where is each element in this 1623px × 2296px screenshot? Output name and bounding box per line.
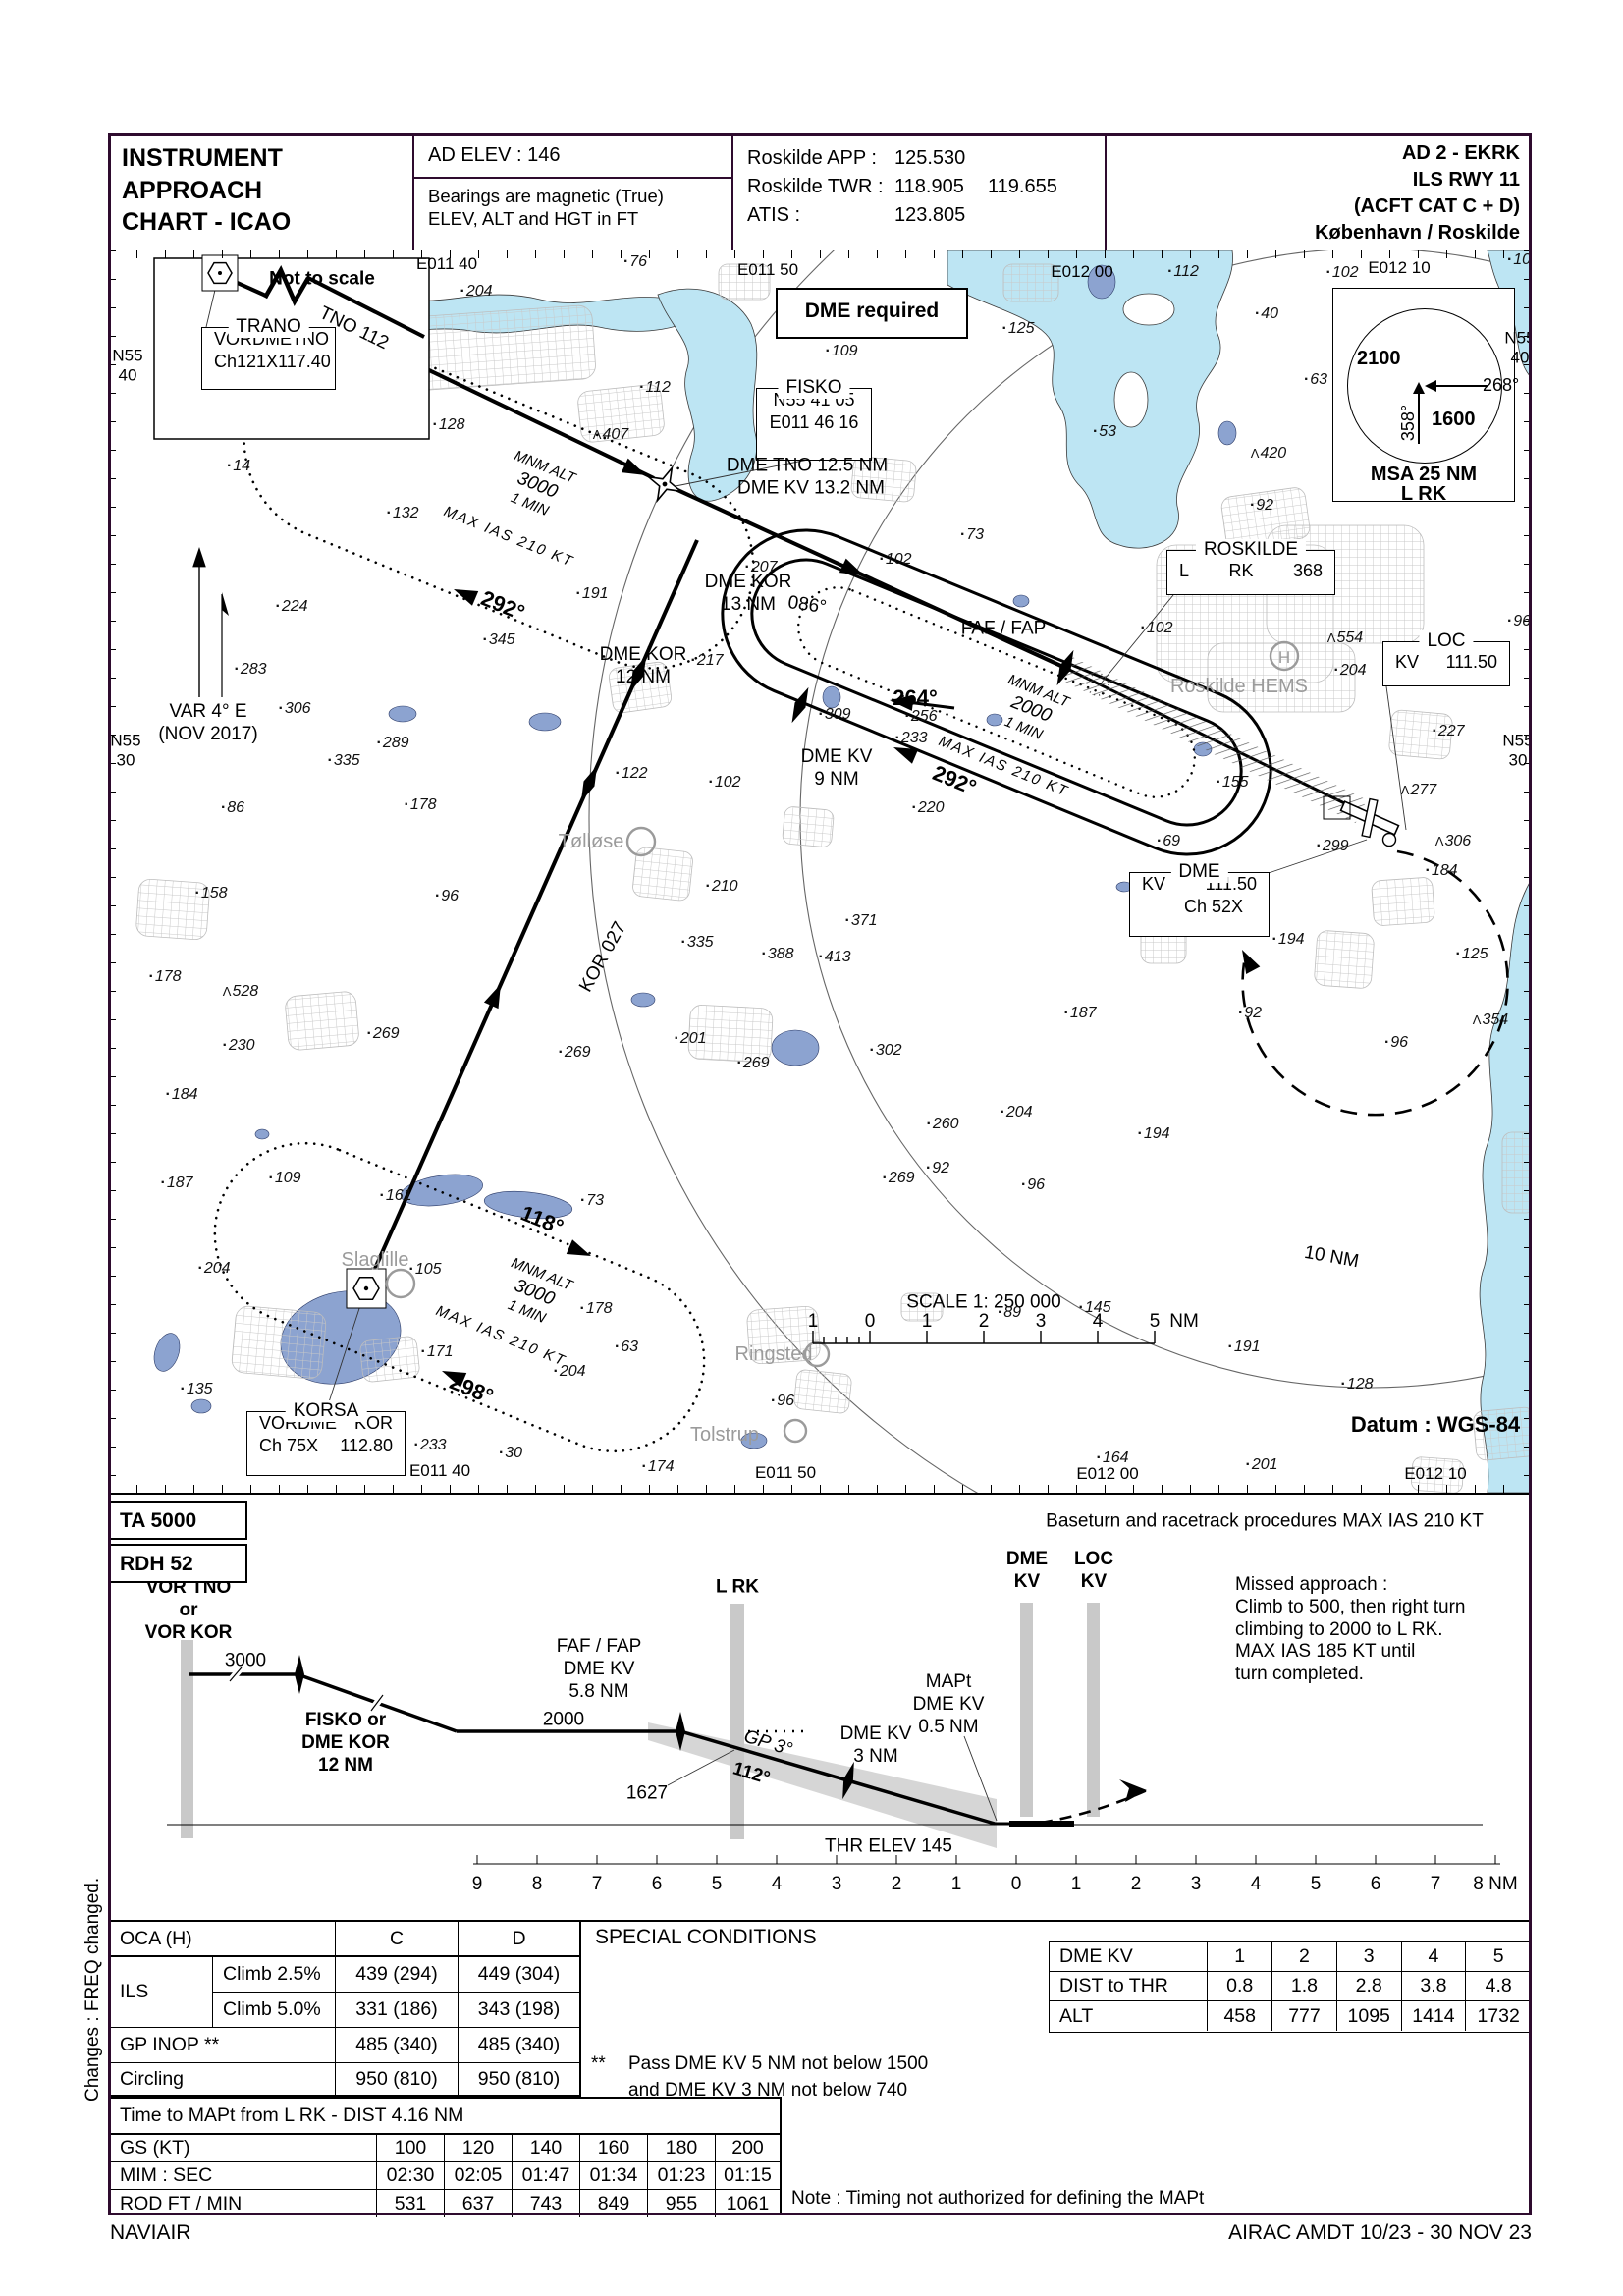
approach-chart-page: INSTRUMENTAPPROACHCHART - ICAO AD ELEV :…: [0, 0, 1623, 2296]
publisher: NAVIAIR: [110, 2221, 190, 2245]
chart-frame: [108, 133, 1532, 2215]
airac-amendment: AIRAC AMDT 10/23 - 30 NOV 23: [943, 2221, 1532, 2245]
changes-note: Changes : FREQ changed.: [82, 1878, 104, 2102]
